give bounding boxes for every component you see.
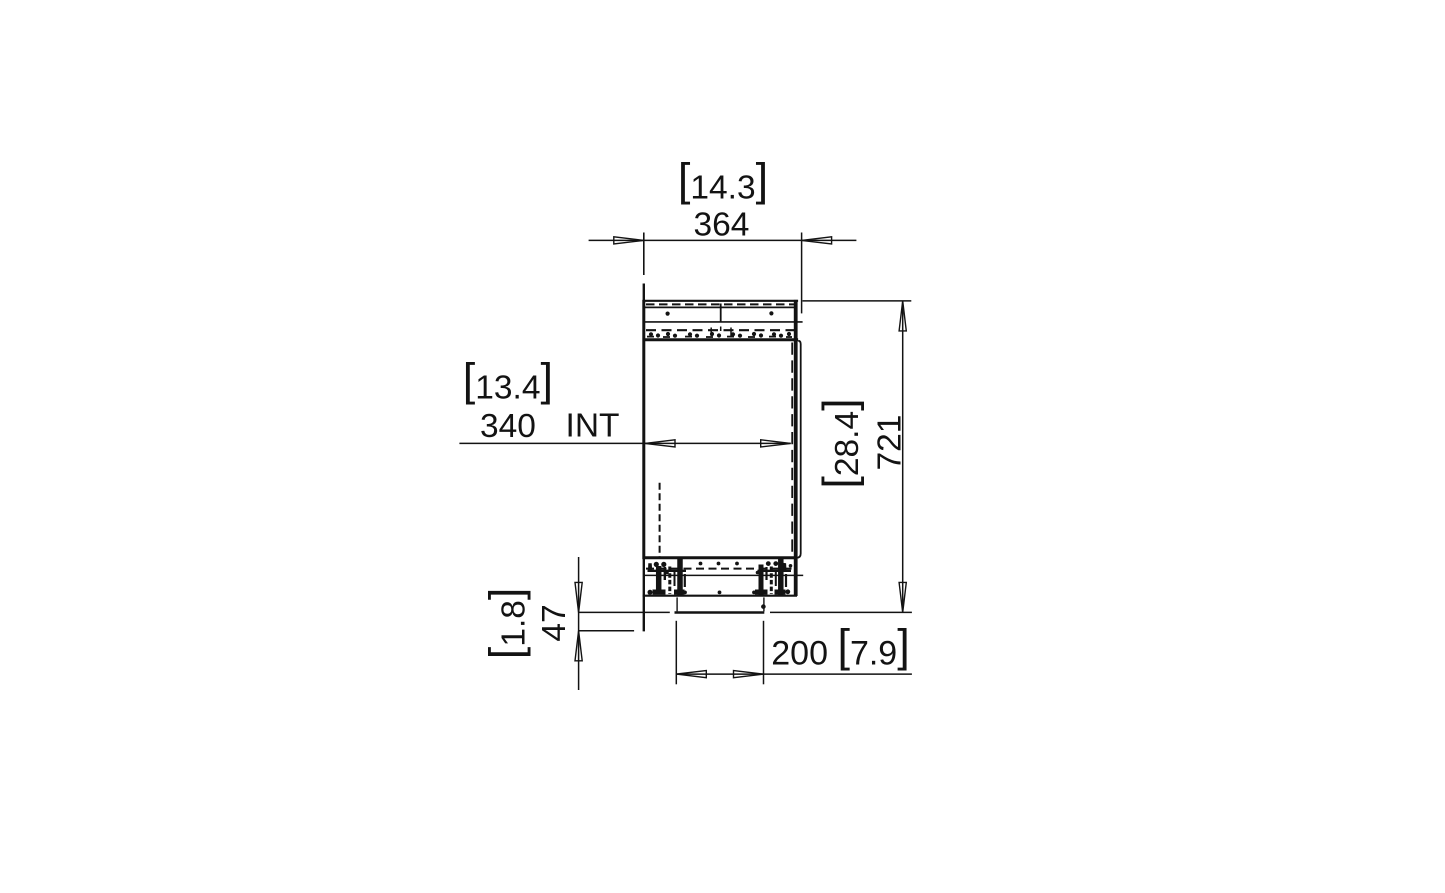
svg-text:721: 721 [872, 415, 909, 471]
svg-text:200 [7.9]: 200 [7.9] [771, 620, 909, 672]
svg-text:[13.4]: [13.4] [463, 354, 553, 406]
svg-text:INT: INT [566, 407, 620, 444]
svg-text:340: 340 [480, 408, 536, 445]
svg-text:[14.3]: [14.3] [678, 154, 768, 206]
svg-text:[28.4]: [28.4] [814, 398, 866, 488]
svg-text:47: 47 [536, 604, 573, 641]
svg-text:364: 364 [694, 206, 750, 243]
svg-text:[1.8]: [1.8] [480, 588, 532, 660]
